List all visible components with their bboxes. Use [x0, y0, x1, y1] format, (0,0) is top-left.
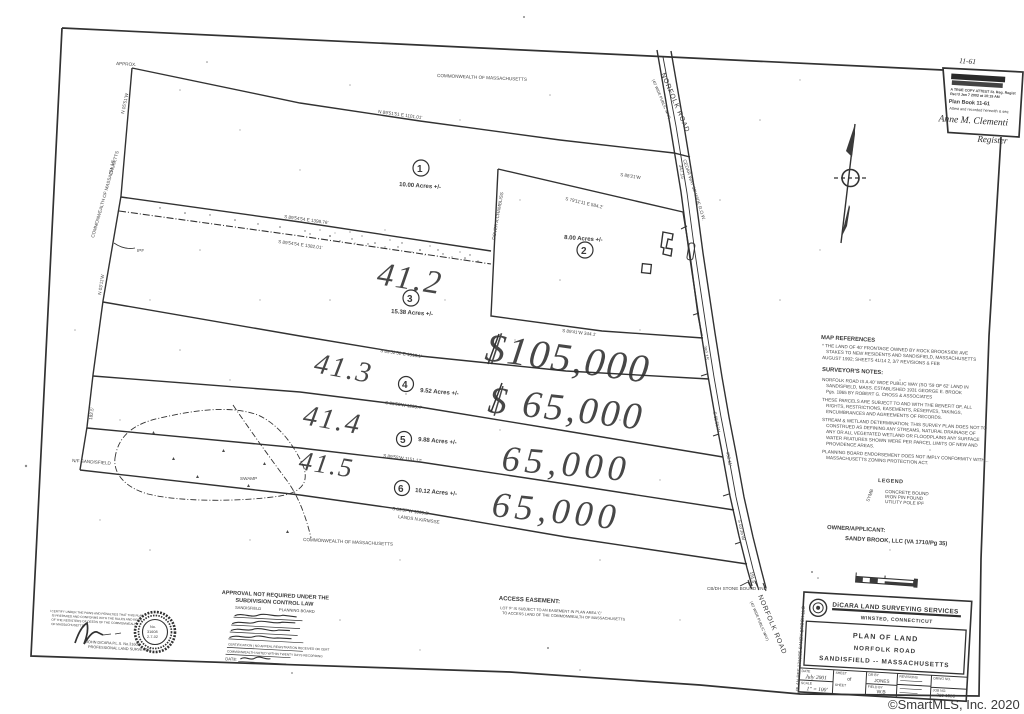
svg-text:JONES: JONES — [874, 678, 890, 684]
svg-text:Register: Register — [976, 134, 1008, 146]
svg-text:31608: 31608 — [147, 630, 158, 634]
svg-text:SHEET: SHEET — [835, 683, 847, 688]
svg-text:DR BY: DR BY — [868, 673, 879, 678]
svg-text:2: 2 — [581, 246, 587, 257]
svg-text:IPF: IPF — [137, 248, 144, 253]
svg-text:1" = 100': 1" = 100' — [806, 686, 828, 693]
svg-text:July 2001: July 2001 — [805, 674, 827, 681]
svg-text:1: 1 — [417, 164, 423, 175]
svg-text:APPROX.: APPROX. — [116, 61, 137, 67]
svg-text:DATE:: DATE: — [225, 656, 237, 662]
svg-text:SWAMP: SWAMP — [240, 476, 257, 481]
svg-text:4: 4 — [402, 380, 408, 391]
svg-text:No.: No. — [150, 625, 156, 629]
svg-text:W.B: W.B — [876, 689, 886, 696]
svg-text:11-61: 11-61 — [959, 56, 977, 66]
svg-text:2-7-02: 2-7-02 — [147, 635, 158, 639]
svg-text:DATE: DATE — [801, 669, 811, 674]
svg-text:5: 5 — [400, 435, 406, 446]
svg-text:©SmartMLS, Inc. 2020: ©SmartMLS, Inc. 2020 — [888, 697, 1020, 712]
svg-text:SHEET: SHEET — [835, 671, 847, 676]
svg-text:SCALE: SCALE — [801, 681, 813, 686]
svg-text:6: 6 — [398, 484, 404, 495]
